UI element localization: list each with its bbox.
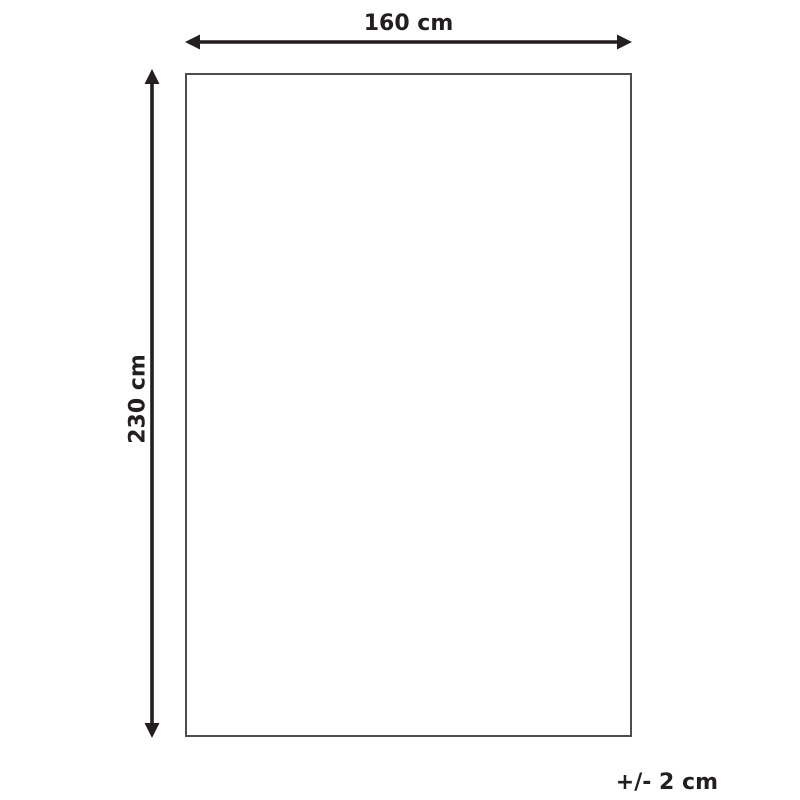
arrow-left-icon	[185, 35, 200, 50]
arrow-up-icon	[145, 69, 160, 84]
height-dimension-label: 230 cm	[126, 354, 151, 444]
arrow-right-icon	[617, 35, 632, 50]
dimension-diagram: 160 cm 230 cm +/- 2 cm	[0, 0, 800, 800]
width-dimension-label: 160 cm	[185, 11, 632, 36]
product-outline-rectangle	[185, 73, 632, 737]
tolerance-label: +/- 2 cm	[616, 770, 718, 795]
width-dimension-arrow	[185, 35, 632, 50]
arrow-down-icon	[145, 723, 160, 738]
